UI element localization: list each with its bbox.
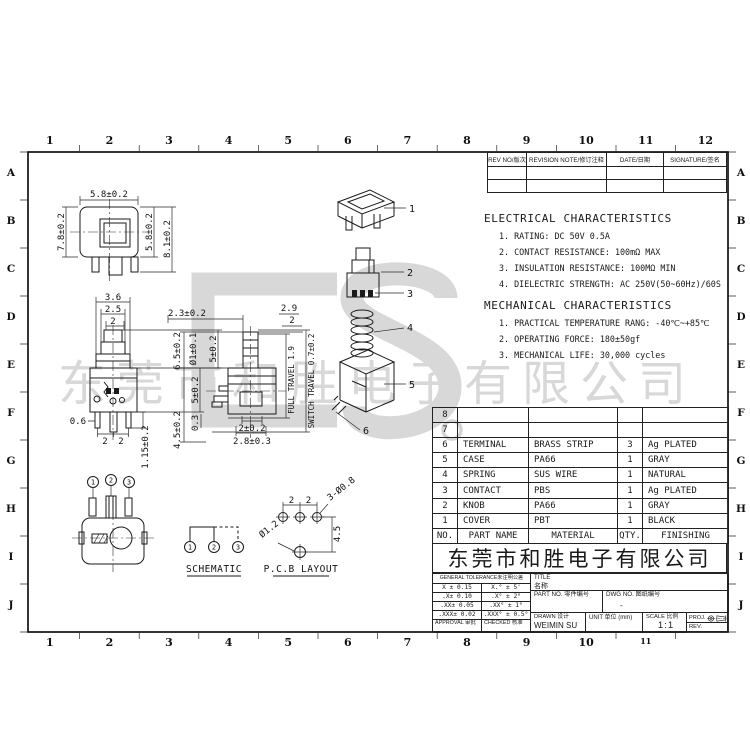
terminal-1-label: 1 <box>91 479 95 487</box>
parts-row: 7 <box>433 423 729 438</box>
dim-v1-left: 7.8±0.2 <box>57 213 67 251</box>
parts-cell: 1 <box>618 453 643 468</box>
top-ruler-7: 7 <box>398 134 416 147</box>
parts-cell: 1 <box>618 468 643 483</box>
row-letter-left-F: F <box>5 407 17 419</box>
parts-cell: GRAY <box>643 498 729 513</box>
row-letter-left-E: E <box>5 359 17 371</box>
parts-cell: 7 <box>433 423 458 438</box>
parts-cell: 3 <box>433 483 458 498</box>
dim-v3-b1: 2±0.2 <box>238 424 265 434</box>
parts-row: 3CONTACTPBS1Ag PLATED <box>433 483 729 498</box>
parts-cell <box>529 423 618 438</box>
dim-full-travel: FULL TRAVEL 1.9 <box>287 346 296 414</box>
title-cn-label: 名称 <box>534 583 728 591</box>
dim-v2-w1: 3.6 <box>105 293 121 303</box>
parts-cell <box>529 408 618 423</box>
bottom-ruler-1: 1 <box>41 636 59 649</box>
parts-cell: SPRING <box>458 468 529 483</box>
dim-v3-k2: 2 <box>289 316 294 326</box>
parts-cell: TERMINAL <box>458 438 529 453</box>
scale-cell: SCALE 比例 1:1 <box>643 613 687 633</box>
tolerance-header: GENERAL TOLERANCE未注明公差 <box>433 574 531 584</box>
parts-cell: 6 <box>433 438 458 453</box>
callout-4: 4 <box>407 323 413 334</box>
bottom-ruler-4: 4 <box>220 636 238 649</box>
parts-row: 2KNOBPA661GRAY <box>433 498 729 513</box>
tolerance-cell: .XX° ± 1° <box>482 602 531 611</box>
row-letter-left-I: I <box>5 551 17 563</box>
callout-5: 5 <box>409 380 415 391</box>
tolerance-cell: .X° ± 2° <box>482 593 531 602</box>
tolerance-cell: .XX± 0.05 <box>433 602 482 611</box>
parts-header-material: MATERIAL <box>529 528 618 543</box>
dim-v3-b2: 2.8±0.3 <box>233 437 271 447</box>
tolerance-cell: X ± 0.15 <box>433 584 482 593</box>
parts-cell: CONTACT <box>458 483 529 498</box>
parts-cell: GRAY <box>643 453 729 468</box>
parts-row: 5CASEPA661GRAY <box>433 453 729 468</box>
tolerance-row: .X± 0.10.X° ± 2° <box>433 593 531 602</box>
top-ruler-12: 12 <box>696 134 714 147</box>
dim-v1-top: 5.8±0.2 <box>90 190 128 200</box>
electrical-title: ELECTRICAL CHARACTERISTICS <box>484 212 736 225</box>
parts-cell: 1 <box>618 483 643 498</box>
terminal-3-label: 3 <box>127 479 131 487</box>
dwg-no-cell: DWG NO. 图纸编号 - <box>603 591 729 613</box>
row-letter-left-H: H <box>5 503 17 515</box>
row-letter-right-C: C <box>735 263 747 275</box>
parts-cell: BLACK <box>643 513 729 528</box>
bottom-ruler-9: 9 <box>518 636 536 649</box>
parts-cell <box>458 408 529 423</box>
top-ruler-2: 2 <box>100 134 118 147</box>
dim-v3-h2: 4.5±0.2 <box>173 411 183 449</box>
approval-cell: APPROVAL 审批 <box>433 620 482 633</box>
mechanical-characteristics: MECHANICAL CHARACTERISTICS 1. PRACTICAL … <box>484 299 736 360</box>
dim-v2-len: 1.15±0.2 <box>141 425 151 468</box>
dim-v3-d1: Ø1±0.1 <box>188 333 199 366</box>
electrical-spec-item: 3. INSULATION RESISTANCE: 100MΩ MIN <box>499 263 736 273</box>
revision-header-date: DATE/日期 <box>607 153 664 167</box>
tolerance-row: X ± 0.15X.° ± 5' <box>433 584 531 593</box>
row-letter-right-A: A <box>735 167 747 179</box>
dim-v2-p1: 2 <box>102 437 107 447</box>
row-letter-right-D: D <box>735 311 747 323</box>
schematic-label: SCHEMATIC <box>186 564 242 575</box>
tolerance-row: .XX± 0.05.XX° ± 1° <box>433 602 531 611</box>
row-letter-left-A: A <box>5 167 17 179</box>
callout-1: 1 <box>409 204 415 215</box>
dim-pcb-hole2: Ø1.2 <box>257 518 281 540</box>
dim-v3-top: 2.3±0.2 <box>168 309 206 319</box>
top-ruler-8: 8 <box>458 134 476 147</box>
row-letter-right-E: E <box>735 359 747 371</box>
dim-pcb-v: 4.5 <box>333 526 343 542</box>
bottom-ruler-7: 7 <box>398 636 416 649</box>
dwg-no-label: DWG NO. 图纸编号 <box>606 592 728 599</box>
parts-cell: 1 <box>433 513 458 528</box>
tolerance-cell: .X± 0.10 <box>433 593 482 602</box>
parts-cell: 8 <box>433 408 458 423</box>
parts-cell: Ag PLATED <box>643 483 729 498</box>
schematic-terminal-3: 3 <box>236 544 240 552</box>
callout-3: 3 <box>407 289 413 300</box>
parts-cell: PBS <box>529 483 618 498</box>
mechanical-spec-item: 3. MECHANICAL LIFE: 30,000 cycles <box>499 350 736 360</box>
dim-pcb-p2: 2 <box>306 496 311 506</box>
row-letter-left-D: D <box>5 311 17 323</box>
parts-header-qty: QTY. <box>618 528 643 543</box>
pcb-label: P.C.B LAYOUT <box>264 564 339 575</box>
top-ruler-10: 10 <box>577 134 595 147</box>
title-label: TITLE <box>534 575 728 582</box>
revision-header-signature: SIGNATURE/签名 <box>664 153 727 167</box>
third-angle-projection-icon <box>707 614 729 623</box>
dim-pcb-holes: 3-Ø0.8 <box>325 475 357 504</box>
parts-cell: PA66 <box>529 498 618 513</box>
mechanical-spec-item: 1. PRACTICAL TEMPERATURE RANG: -40℃~+85℃ <box>499 318 736 328</box>
dim-v2-w3: 2 <box>110 317 115 327</box>
tolerance-row: .XXX± 0.02.XXX° ± 0.5° <box>433 611 531 620</box>
bottom-ruler-2: 2 <box>100 636 118 649</box>
parts-header-finishing: FINISHING <box>643 528 729 543</box>
projection-cell: PROJ. <box>687 613 729 623</box>
bottom-ruler-8: 8 <box>458 636 476 649</box>
checked-cell: CHECKED 核准 <box>482 620 531 633</box>
bottom-ruler-5: 5 <box>279 636 297 649</box>
parts-row: 8 <box>433 408 729 423</box>
top-ruler-9: 9 <box>518 134 536 147</box>
watermark-text: 东莞市和胜电子有限公司 <box>58 358 696 411</box>
pcb-layout: 3-Ø0.8 Ø1.2 4.5 2 2 P.C.B LAYOUT <box>257 475 357 576</box>
electrical-spec-item: 4. DIELECTRIC STRENGTH: AC 250V(50~60Hz)… <box>499 279 736 289</box>
revision-empty-row <box>488 180 727 193</box>
row-letter-right-H: H <box>735 503 747 515</box>
front-view: 5.8±0.2 7.8±0.2 5.8±0.2 8.1±0.2 <box>57 190 176 283</box>
row-letter-left-B: B <box>5 215 17 227</box>
parts-header-no: NO. <box>433 528 458 543</box>
top-ruler-5: 5 <box>279 134 297 147</box>
dim-pcb-p1: 2 <box>289 496 294 506</box>
parts-cell: 2 <box>433 498 458 513</box>
parts-table: 876TERMINALBRASS STRIP3Ag PLATED5CASEPA6… <box>432 407 729 544</box>
parts-cell <box>618 408 643 423</box>
rev-cell: REV. <box>687 623 729 633</box>
row-letter-left-G: G <box>5 455 17 467</box>
dim-v1-right1: 5.8±0.2 <box>145 213 155 251</box>
dim-v1-right2: 8.1±0.2 <box>163 220 173 258</box>
parts-row: 6TERMINALBRASS STRIP3Ag PLATED <box>433 438 729 453</box>
parts-cell: 1 <box>618 513 643 528</box>
proj-label: PROJ. <box>689 615 705 621</box>
callout-6: 6 <box>363 426 369 437</box>
row-letter-right-J: J <box>735 599 747 611</box>
dim-v2-h1: 5±0.2 <box>209 335 219 362</box>
top-ruler-3: 3 <box>160 134 178 147</box>
parts-cell: 5 <box>433 453 458 468</box>
unit-cell: UNIT 单位 (mm) <box>586 613 643 633</box>
electrical-items: 1. RATING: DC 50V 0.5A2. CONTACT RESISTA… <box>484 231 736 289</box>
revision-table: REV NO/版次 REVISION NOTE/修订注释 DATE/日期 SIG… <box>487 152 727 193</box>
title-block: GENERAL TOLERANCE未注明公差 X ± 0.15X.° ± 5'.… <box>432 573 728 632</box>
parts-cell: COVER <box>458 513 529 528</box>
mechanical-spec-item: 2. OPERATING FORCE: 180±50gf <box>499 334 736 344</box>
unit-label: UNIT 单位 (mm) <box>589 615 642 622</box>
bottom-ruler-6: 6 <box>339 636 357 649</box>
row-letter-right-B: B <box>735 215 747 227</box>
mechanical-items: 1. PRACTICAL TEMPERATURE RANG: -40℃~+85℃… <box>484 318 736 360</box>
revision-header-row: REV NO/版次 REVISION NOTE/修订注释 DATE/日期 SIG… <box>488 153 727 167</box>
parts-header-name: PART NAME <box>458 528 529 543</box>
title-cell: TITLE 名称 <box>531 574 729 591</box>
electrical-spec-item: 2. CONTACT RESISTANCE: 100mΩ MAX <box>499 247 736 257</box>
revision-empty-row <box>488 167 727 180</box>
parts-cell: CASE <box>458 453 529 468</box>
parts-row: 4SPRINGSUS WIRE1NATURAL <box>433 468 729 483</box>
top-ruler-4: 4 <box>220 134 238 147</box>
parts-cell: SUS WIRE <box>529 468 618 483</box>
dim-v3-h1: 6.5±0.2 <box>173 332 183 370</box>
tolerance-cell: .XXX° ± 0.5° <box>482 611 531 620</box>
bottom-ruler-10: 10 <box>577 636 595 649</box>
parts-cell: BRASS STRIP <box>529 438 618 453</box>
schematic-terminal-2: 2 <box>212 544 216 552</box>
electrical-spec-item: 1. RATING: DC 50V 0.5A <box>499 231 736 241</box>
bottom-view: 1 2 3 <box>72 475 154 573</box>
bottom-ruler-11: 11 <box>637 636 655 646</box>
callout-2: 2 <box>407 268 413 279</box>
parts-cell: NATURAL <box>643 468 729 483</box>
top-ruler-1: 1 <box>41 134 59 147</box>
drawn-cell: DRAWN 设计 WEIMIN SU <box>531 613 586 633</box>
part-no-label: PART NO. 零件编号 <box>534 592 602 599</box>
dim-v2-w2: 2.5 <box>105 305 121 315</box>
parts-cell: Ag PLATED <box>643 438 729 453</box>
parts-cell: PA66 <box>529 453 618 468</box>
parts-row: 1COVERPBT1BLACK <box>433 513 729 528</box>
parts-cell: 3 <box>618 438 643 453</box>
tolerance-rows: X ± 0.15X.° ± 5'.X± 0.10.X° ± 2°.XX± 0.0… <box>433 584 531 620</box>
parts-header-row: NO. PART NAME MATERIAL QTY. FINISHING <box>433 528 729 543</box>
schematic-terminal-1: 1 <box>188 544 192 552</box>
revision-header-revno: REV NO/版次 <box>488 153 527 167</box>
dwg-no-value: - <box>620 602 728 611</box>
dim-v3-k1: 2.9 <box>281 304 297 314</box>
scale-value: 1:1 <box>646 621 686 631</box>
dim-v2-pin: 0.6 <box>70 417 86 427</box>
company-name: 东莞市和胜电子有限公司 <box>432 543 727 573</box>
engineering-drawing-page: 东莞市和胜电子有限公司 5.8±0.2 7.8±0.2 5.8±0.2 8.1±… <box>0 0 750 750</box>
mechanical-title: MECHANICAL CHARACTERISTICS <box>484 299 736 312</box>
parts-cell: 1 <box>618 498 643 513</box>
drawn-label: DRAWN 设计 <box>534 614 585 620</box>
revision-header-note: REVISION NOTE/修订注释 <box>527 153 607 167</box>
dim-switch-travel: SWITCH TRAVEL 0.7±0.2 <box>307 334 316 429</box>
row-letter-left-J: J <box>5 599 17 611</box>
bottom-ruler-3: 3 <box>160 636 178 649</box>
row-letter-right-G: G <box>735 455 747 467</box>
top-ruler-11: 11 <box>637 134 655 147</box>
parts-cell: 4 <box>433 468 458 483</box>
tolerance-cell: X.° ± 5' <box>482 584 531 593</box>
terminal-2-label: 2 <box>109 477 113 485</box>
row-letter-right-F: F <box>735 407 747 419</box>
row-letter-right-I: I <box>735 551 747 563</box>
parts-cell <box>618 423 643 438</box>
top-ruler-6: 6 <box>339 134 357 147</box>
dim-v2-h2: 5±0.2 <box>191 376 201 403</box>
dim-v2-p2: 2 <box>118 437 123 447</box>
parts-cell <box>643 408 729 423</box>
electrical-characteristics: ELECTRICAL CHARACTERISTICS 1. RATING: DC… <box>484 212 736 289</box>
parts-cell: PBT <box>529 513 618 528</box>
parts-cell <box>643 423 729 438</box>
part-no-cell: PART NO. 零件编号 <box>531 591 603 613</box>
row-letter-left-C: C <box>5 263 17 275</box>
tolerance-cell: .XXX± 0.02 <box>433 611 482 620</box>
drawn-value: WEIMIN SU <box>534 622 585 631</box>
dim-v3-d2: 0.3 <box>191 415 201 431</box>
parts-cell <box>458 423 529 438</box>
parts-cell: KNOB <box>458 498 529 513</box>
schematic: 1 2 3 SCHEMATIC <box>185 527 244 576</box>
